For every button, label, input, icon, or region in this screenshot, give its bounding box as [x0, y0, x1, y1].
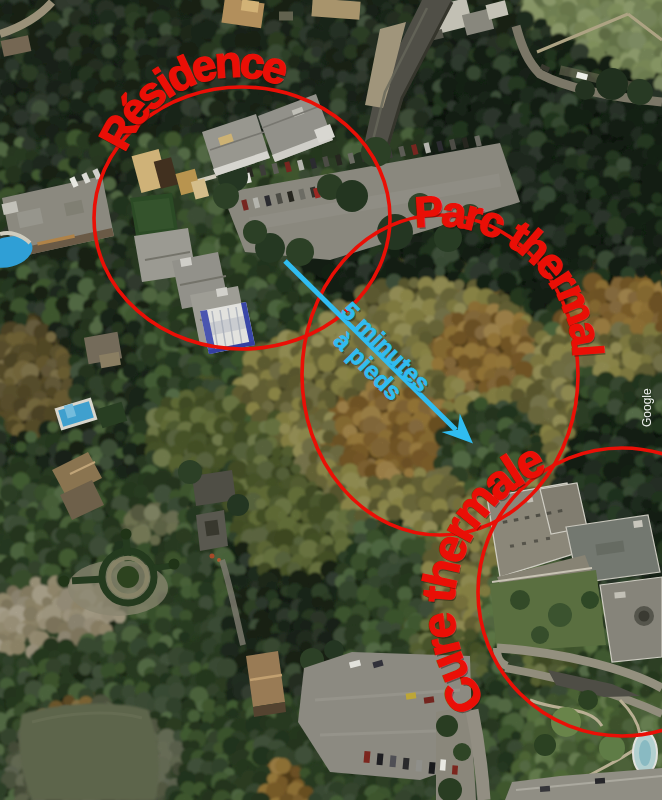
- svg-text:Google: Google: [640, 388, 654, 427]
